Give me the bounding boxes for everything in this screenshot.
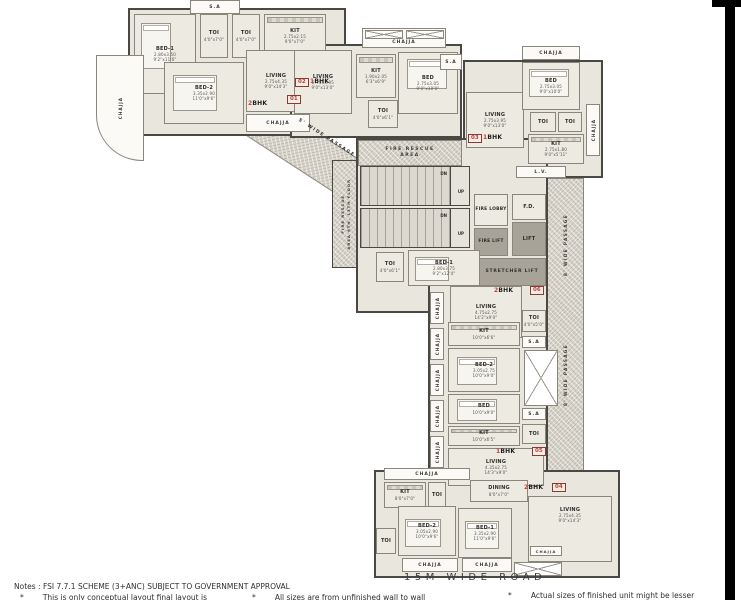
chajja-strip-col-3: CHAJJA — [430, 364, 444, 396]
fire-lobby-label: FIRE LOBBY — [475, 207, 506, 213]
chajja-label: CHAJJA — [435, 441, 440, 463]
room-name: TOI — [538, 119, 548, 125]
room-toi1-unit03: TOI — [530, 112, 556, 132]
room-dim-ft: 9'0"x5'11" — [545, 152, 568, 157]
room-toi1-unit04: TOI — [428, 482, 446, 508]
fd-label: F.D. — [523, 204, 534, 210]
fire-lift-label: FIRE LIFT — [478, 239, 503, 245]
room-toi2-unit06: TOI4'0"x5'0" — [522, 310, 546, 332]
sa-label: S.A — [528, 412, 539, 417]
room-kit-unit05: KIT10'0"x6'5" — [448, 426, 520, 446]
room-toi1-unit01: TOI4'0"x7'0" — [200, 14, 228, 58]
unit-02-type-label: 1BHK — [310, 78, 329, 85]
stair-up-label: UP — [458, 231, 464, 236]
room-dim-ft: 9'0"x7'0" — [284, 39, 306, 44]
chajja-label: CHAJJA — [118, 97, 123, 119]
room-dim-ft: 10'0"x6'5" — [473, 437, 496, 442]
fire-lobby: FIRE LOBBY — [474, 194, 508, 226]
fire-rescue-refuge-strip: FIRE RESCUE AREA 6TH, 13TH FLOOR — [332, 160, 358, 268]
stretcher-lift: STRETCHER LIFT — [478, 258, 546, 286]
unit-06-marker: 06 — [530, 286, 544, 295]
stair-landing — [450, 167, 469, 205]
unit-05-marker: 05 — [532, 447, 546, 456]
chajja-label: CHAJJA — [435, 405, 440, 427]
stretcher-lift-label: STRETCHER LIFT — [486, 269, 539, 275]
room-bed2-unit04: BED-23.05x2.9010'0"x9'6" — [398, 506, 456, 556]
sit-area-strip-unit06: S.A — [522, 336, 546, 348]
passage-8ft-label: 8' WIDE PASSAGE — [563, 344, 568, 406]
note-3: * Actual sizes of finished unit might be… — [508, 591, 694, 600]
room-dim-ft: 9'0"x14'3" — [559, 518, 582, 523]
chajja-strip-unit03-right: CHAJJA — [586, 104, 600, 156]
fire-rescue-floors-label-1: FIRE RESCUE — [340, 195, 345, 234]
sit-area-strip-unit05: S.A — [522, 408, 546, 420]
chajja-label: CHAJJA — [435, 333, 440, 355]
bhk-text: BHK — [528, 484, 543, 491]
chajja-grill-icon — [365, 30, 403, 39]
room-dim-ft: 8'0"x7'0" — [395, 496, 415, 501]
unit-01-type-label: 2BHK — [248, 100, 267, 107]
unit-03-marker: 03 — [468, 134, 482, 143]
room-dim-ft: 14'2"x9'0" — [475, 315, 498, 320]
room-toi2-unit03: TOI — [558, 112, 582, 132]
notes-heading: Notes : FSI 7.7.1 SCHEME (3+ANC) SUBJECT… — [14, 582, 290, 591]
chajja-label: CHAJJA — [539, 51, 562, 56]
room-kit-unit03: KIT2.75x1.809'0"x5'11" — [528, 134, 584, 164]
room-dim-ft: 10'0"x9'0" — [473, 373, 496, 378]
room-bed1-unit04: BED-13.35x2.9011'0"x9'6" — [458, 508, 512, 558]
stair-dn-label: DN — [440, 213, 447, 218]
room-dim-ft: 9'0"x10'0" — [417, 86, 440, 91]
sa-label: S.A — [528, 340, 539, 345]
room-bed1-unit06: BED-12.80x3.759'2"x12'4" — [408, 250, 480, 286]
fire-rescue-area: FIRE RESCUEAREA — [358, 140, 462, 166]
room-dining-unit04: DINING8'0"x7'0" — [470, 480, 528, 502]
chajja-strip-col-2: CHAJJA — [430, 328, 444, 360]
chajja-strip-col-1: CHAJJA — [430, 292, 444, 324]
stair-up-label: UP — [458, 189, 464, 194]
room-bed2-unit01: BED-23.35x2.9011'0"x9'6" — [164, 62, 244, 124]
sa-label: S.A — [445, 60, 456, 65]
room-dim-ft: 4'0"x7'0" — [204, 37, 224, 42]
room-dim-ft: 6'3"x6'9" — [365, 79, 387, 84]
stair-landing — [450, 209, 469, 247]
room-name: TOI — [565, 119, 575, 125]
bhk-text: BHK — [487, 134, 502, 141]
unit-04-type-label: 2BHK — [524, 484, 543, 491]
room-toi-unit02: TOI4'0"x6'1" — [368, 100, 398, 128]
room-bed-unit05: BED10'0"x9'0" — [448, 394, 520, 424]
room-bed-unit03: BED2.75x3.059'0"x10'0" — [522, 62, 580, 110]
chajja-strip-unit04-right: CHAJJA — [530, 546, 562, 556]
chajja-label: CHAJJA — [536, 549, 557, 554]
room-kit-unit06: KIT10'0"x6'6" — [448, 322, 520, 346]
fire-rescue-floors-label-2: AREA 6TH, 13TH FLOOR — [346, 179, 351, 250]
fire-rescue-label-2: AREA — [400, 153, 420, 159]
unit-05-type-label: 1BHK — [496, 448, 515, 455]
floor-plan-sheet: FIRE RESCUE AREA 6TH, 13TH FLOOR S.A CHA… — [0, 0, 741, 600]
chajja-label: CHAJJA — [415, 472, 438, 477]
lv-strip-unit03: L.V. — [516, 166, 566, 178]
room-name: TOI — [529, 431, 539, 437]
staircase-lower: DN UP — [360, 208, 470, 248]
lift: LIFT — [512, 222, 546, 256]
bhk-text: BHK — [500, 448, 515, 455]
unit-01-marker: 01 — [287, 95, 301, 104]
chajja-label: CHAJJA — [591, 119, 596, 141]
road-label: 15M WIDE ROAD — [404, 572, 546, 583]
room-dim-ft: 4'0"x7'0" — [236, 37, 256, 42]
lv-label: L.V. — [534, 170, 547, 175]
room-dim-ft: 11'0"x9'6" — [474, 536, 497, 541]
room-dim-ft: 9'0"x13'0" — [312, 85, 335, 90]
chajja-grill-icon — [406, 30, 444, 39]
bhk-text: BHK — [314, 78, 329, 85]
scan-edge-bar — [725, 0, 735, 600]
fire-duct: F.D. — [512, 194, 546, 220]
room-dim-ft: 10'0"x9'6" — [416, 534, 439, 539]
chajja-strip-unit04-bottom-1: CHAJJA — [402, 558, 458, 572]
chajja-label: CHAJJA — [435, 369, 440, 391]
room-name: TOI — [381, 538, 391, 544]
kitchen-counter-icon — [267, 17, 323, 23]
room-toi-unit05: TOI — [522, 424, 546, 444]
room-dim-ft: 9'0"x10'0" — [540, 89, 563, 94]
stair-dn-label: DN — [440, 171, 447, 176]
chajja-strip-col-4: CHAJJA — [430, 400, 444, 432]
chajja-label: CHAJJA — [266, 121, 289, 126]
lift-label: LIFT — [523, 236, 536, 242]
note-1: * This is only conceptual layout final l… — [20, 593, 207, 600]
room-kit-unit02: KIT1.90x2.056'3"x6'9" — [356, 54, 396, 98]
room-dim-ft: 14'3"x9'0" — [485, 470, 508, 475]
room-dim-ft: 4'0"x6'1" — [380, 268, 400, 273]
staircase-upper: DN UP — [360, 166, 470, 206]
room-kit-unit04: KIT8'0"x7'0" — [384, 482, 426, 508]
note-2: * All sizes are from unfinished wall to … — [252, 593, 425, 600]
room-dim-ft: 10'0"x6'6" — [473, 335, 496, 340]
chajja-label: CHAJJA — [392, 38, 415, 47]
scan-edge-corner — [712, 0, 741, 7]
room-dim-ft: 4'0"x6'1" — [373, 115, 393, 120]
chajja-label: CHAJJA — [418, 563, 441, 568]
room-dim-ft: 9'0"x14'3" — [265, 84, 288, 89]
bhk-text: BHK — [252, 100, 267, 107]
room-dim-ft: 8'0"x7'0" — [488, 492, 510, 497]
unit-06-type-label: 2BHK — [494, 287, 513, 294]
chajja-strip-unit04-bottom-2: CHAJJA — [462, 558, 512, 572]
room-dim-ft: 9'0"x13'0" — [484, 123, 507, 128]
room-dim-ft: 4'0"x5'0" — [524, 322, 544, 327]
unit-03-type-label: 1BHK — [483, 134, 502, 141]
chajja-label: CHAJJA — [435, 297, 440, 319]
passage-8ft-label: 8' WIDE PASSAGE — [563, 214, 568, 276]
chajja-strip-unit02-top: CHAJJA — [362, 28, 446, 48]
sa-label: S.A — [209, 5, 220, 10]
kitchen-counter-icon — [359, 57, 393, 63]
chajja-strip-unit04-top: CHAJJA — [384, 468, 470, 480]
chajja-label: CHAJJA — [475, 563, 498, 568]
passage-8ft-label-1-wrap: 8' WIDE PASSAGE — [548, 200, 582, 290]
room-name: DINING — [488, 485, 510, 491]
chajja-balcony-unit01: CHAJJA — [96, 55, 144, 161]
room-name: TOI — [432, 492, 442, 498]
unit-04-marker: 04 — [552, 483, 566, 492]
room-bed2-unit06: BED-23.05x2.7510'0"x9'0" — [448, 348, 520, 392]
sit-area-strip-unit01: S.A — [190, 0, 240, 14]
room-dim-ft: 9'2"x12'4" — [433, 271, 456, 276]
bhk-text: BHK — [498, 287, 513, 294]
sit-area-strip-unit02: S.A — [440, 54, 462, 70]
passage-8ft-label-2-wrap: 8' WIDE PASSAGE — [548, 330, 582, 420]
room-dim-ft: 10'0"x9'0" — [473, 410, 496, 415]
chajja-strip-unit03-top: CHAJJA — [522, 46, 580, 60]
room-dim-ft: 11'0"x9'6" — [193, 96, 216, 101]
room-toi1-unit06: TOI4'0"x6'1" — [376, 252, 404, 282]
chajja-strip-col-5: CHAJJA — [430, 436, 444, 468]
room-toi2-unit04: TOI — [376, 528, 396, 554]
unit-02-marker: 02 — [295, 78, 309, 87]
